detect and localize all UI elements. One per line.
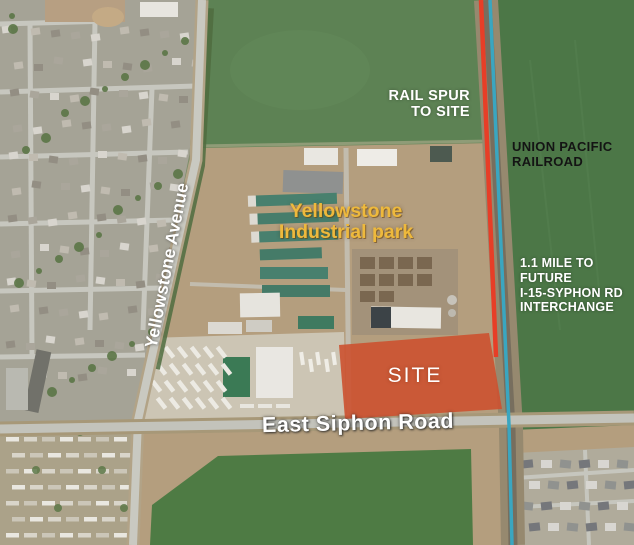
building xyxy=(240,293,280,318)
house xyxy=(605,523,616,531)
trailer-home xyxy=(6,469,19,474)
trailer-home xyxy=(60,469,73,474)
house xyxy=(39,306,49,314)
house xyxy=(158,157,167,164)
trailer-home xyxy=(102,453,115,458)
house xyxy=(71,31,81,39)
tree xyxy=(113,205,123,215)
tree xyxy=(9,13,15,19)
house xyxy=(10,304,20,312)
house xyxy=(58,372,67,379)
house xyxy=(28,216,38,224)
trailer-home xyxy=(96,437,109,442)
house xyxy=(103,61,112,68)
trailer-home xyxy=(48,485,61,490)
parking-lot xyxy=(6,368,28,410)
house xyxy=(95,276,105,284)
house xyxy=(97,366,107,374)
industrial-park-label: Yellowstone Industrial park xyxy=(255,201,437,244)
house xyxy=(61,183,70,190)
house xyxy=(119,242,129,250)
trailer-home xyxy=(102,517,115,522)
parked-trailer xyxy=(258,404,272,408)
house xyxy=(548,523,559,531)
house xyxy=(9,151,19,159)
trailer-home xyxy=(42,533,55,538)
trailer-home xyxy=(114,437,127,442)
house xyxy=(138,154,148,162)
house xyxy=(89,87,99,95)
tree xyxy=(36,268,42,274)
house xyxy=(114,341,124,349)
trailer-home xyxy=(66,517,79,522)
house xyxy=(53,56,63,64)
tree xyxy=(98,466,106,474)
house xyxy=(34,64,43,71)
trailer-home xyxy=(6,501,19,506)
house xyxy=(102,123,112,131)
trailer-home xyxy=(84,485,97,490)
tree xyxy=(8,24,18,34)
trailer-home xyxy=(48,453,61,458)
trailer-home xyxy=(42,501,55,506)
house xyxy=(48,155,58,163)
tree xyxy=(135,195,141,201)
tree xyxy=(107,351,117,361)
trailer-home xyxy=(24,533,37,538)
house xyxy=(122,125,132,133)
house xyxy=(122,62,132,70)
house xyxy=(598,460,609,468)
tree xyxy=(80,96,90,106)
house xyxy=(29,90,39,98)
tree xyxy=(69,377,75,383)
tree xyxy=(121,73,129,81)
tree xyxy=(120,504,128,512)
trailer-home xyxy=(84,453,97,458)
house xyxy=(79,310,89,318)
house xyxy=(26,343,35,350)
interchange-distance-label: 1.1 MILE TO FUTURE I-15-SYPHON RD INTERC… xyxy=(520,256,623,315)
building xyxy=(246,320,272,332)
house xyxy=(69,157,79,165)
tree xyxy=(41,133,51,143)
house xyxy=(26,279,36,287)
house xyxy=(8,214,18,222)
house xyxy=(117,215,127,223)
house xyxy=(117,152,127,160)
house xyxy=(127,369,136,376)
trailer-home xyxy=(48,517,61,522)
subdivision xyxy=(515,447,634,545)
trailer-home xyxy=(30,453,43,458)
house xyxy=(100,186,110,194)
material-yard xyxy=(352,249,458,335)
trailer-home xyxy=(66,485,79,490)
trailer-home xyxy=(78,469,91,474)
tree xyxy=(181,37,189,45)
trailer-home xyxy=(42,469,55,474)
trailer-home xyxy=(24,437,37,442)
tree xyxy=(129,341,135,347)
trailer-home xyxy=(96,533,109,538)
parked-trailer xyxy=(276,404,290,408)
house xyxy=(12,187,22,195)
trailer-home xyxy=(66,453,79,458)
house xyxy=(10,88,20,96)
house xyxy=(97,213,107,221)
tree xyxy=(162,50,168,56)
house xyxy=(68,211,78,219)
house xyxy=(560,459,572,468)
house xyxy=(82,121,92,129)
house xyxy=(100,250,109,257)
house xyxy=(139,91,149,99)
warehouse-green xyxy=(298,316,334,329)
house xyxy=(6,340,16,348)
house xyxy=(76,274,86,282)
trailer-home xyxy=(102,485,115,490)
house xyxy=(31,180,41,188)
trailer-home xyxy=(6,437,19,442)
house xyxy=(149,244,159,252)
house xyxy=(14,61,24,69)
trailer-home xyxy=(78,501,91,506)
house xyxy=(541,501,553,510)
house xyxy=(31,27,41,35)
ball-field xyxy=(92,7,124,27)
house xyxy=(567,480,579,489)
house xyxy=(171,120,181,128)
east-siphon-road-label: East Siphon Road xyxy=(262,409,454,438)
warehouse-green xyxy=(260,267,328,279)
tree xyxy=(88,364,96,372)
house xyxy=(91,33,101,41)
house xyxy=(99,312,109,320)
house xyxy=(59,245,69,253)
aerial-site-map: RAIL SPUR TO SITE UNION PACIFIC RAILROAD… xyxy=(0,0,634,545)
house xyxy=(140,28,150,36)
parked-trailer xyxy=(240,404,254,408)
house xyxy=(541,460,552,468)
house xyxy=(605,480,617,489)
trailer-home xyxy=(60,437,73,442)
field-patch xyxy=(230,30,370,110)
trailer-home xyxy=(78,437,91,442)
house xyxy=(83,58,93,66)
house xyxy=(13,124,23,132)
trailer-home xyxy=(60,533,73,538)
house xyxy=(47,282,56,289)
house xyxy=(45,335,55,343)
house xyxy=(624,522,634,531)
house xyxy=(120,26,130,34)
building xyxy=(304,148,338,165)
trailer-home xyxy=(30,485,43,490)
building xyxy=(430,146,452,162)
tree xyxy=(96,232,102,238)
trailer-home xyxy=(6,533,19,538)
house xyxy=(128,305,138,313)
house xyxy=(51,29,61,37)
trailer-home xyxy=(114,533,127,538)
house xyxy=(116,279,125,286)
house xyxy=(158,93,168,101)
warehouse-green xyxy=(223,357,250,397)
house xyxy=(48,218,58,226)
house xyxy=(142,118,152,126)
building xyxy=(357,149,397,166)
house xyxy=(586,522,598,531)
house xyxy=(172,58,181,65)
trailer-home xyxy=(60,501,73,506)
house xyxy=(179,96,188,103)
trailer-home xyxy=(12,453,25,458)
house xyxy=(548,480,560,489)
trailer-home xyxy=(12,517,25,522)
tree xyxy=(14,278,24,288)
tree xyxy=(32,466,40,474)
building xyxy=(208,322,242,334)
trailer-park xyxy=(0,428,136,545)
site-label: SITE xyxy=(379,364,451,388)
house xyxy=(617,502,628,510)
house xyxy=(598,501,610,510)
house xyxy=(95,340,104,347)
house xyxy=(81,184,91,192)
warehouse-dark-roof xyxy=(371,307,391,328)
building xyxy=(283,170,344,194)
trailer-home xyxy=(96,501,109,506)
house xyxy=(78,373,88,381)
tree xyxy=(74,242,84,252)
house xyxy=(529,522,541,531)
commercial-building xyxy=(140,2,178,17)
tree xyxy=(154,182,162,190)
house xyxy=(586,481,597,489)
rail-spur-label: RAIL SPUR TO SITE xyxy=(389,89,470,120)
house xyxy=(136,280,146,288)
house xyxy=(567,522,579,531)
tree xyxy=(102,86,108,92)
house xyxy=(579,459,591,468)
house xyxy=(29,154,38,161)
trailer-home xyxy=(12,485,25,490)
tree xyxy=(61,109,69,117)
trailer-home xyxy=(114,469,127,474)
house xyxy=(579,501,591,510)
tree xyxy=(47,387,57,397)
house xyxy=(160,30,170,38)
house xyxy=(119,90,128,97)
house xyxy=(121,189,130,196)
trailer-home xyxy=(78,533,91,538)
building xyxy=(256,347,293,398)
house xyxy=(98,151,107,158)
house xyxy=(40,244,49,251)
trailer-home xyxy=(42,437,55,442)
house xyxy=(75,337,85,345)
tree xyxy=(54,504,62,512)
tree xyxy=(22,146,30,154)
trailer-home xyxy=(30,517,43,522)
house xyxy=(70,94,80,102)
house xyxy=(59,308,69,316)
house xyxy=(137,217,147,225)
house xyxy=(50,93,59,100)
warehouse-green xyxy=(260,247,322,260)
tree xyxy=(140,60,150,70)
trailer-home xyxy=(24,501,37,506)
house xyxy=(62,119,72,127)
house xyxy=(33,126,43,134)
house xyxy=(11,250,21,258)
trailer-home xyxy=(84,517,97,522)
union-pacific-railroad-label: UNION PACIFIC RAILROAD xyxy=(512,140,612,170)
house xyxy=(560,502,571,510)
house xyxy=(529,481,540,489)
house xyxy=(624,480,634,489)
house xyxy=(617,459,629,468)
tree xyxy=(55,255,63,263)
